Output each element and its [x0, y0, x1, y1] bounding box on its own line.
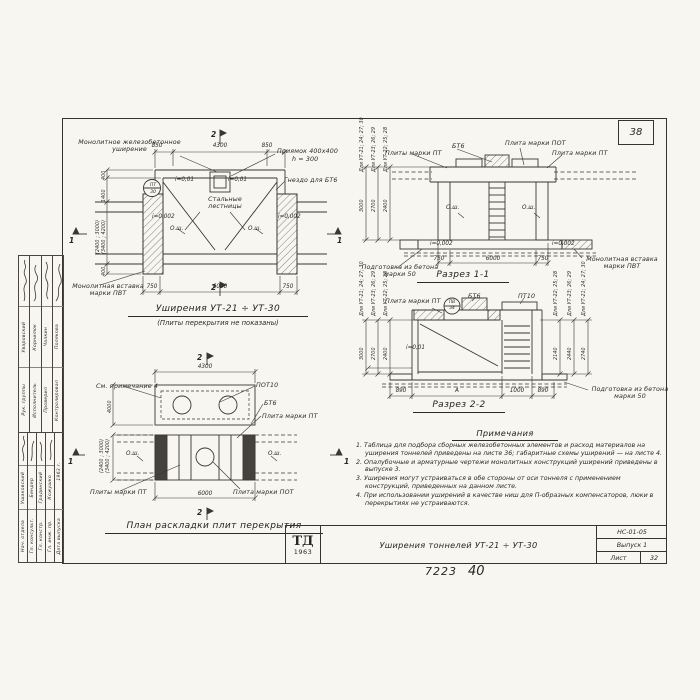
stamp-role: Гл. консульт.: [30, 518, 35, 553]
label-concrete-prep: Подготовка из бетона марки 50: [588, 386, 672, 401]
signature: [28, 433, 36, 466]
signature-scribble: [28, 435, 36, 463]
dim-value: 4300: [190, 364, 220, 371]
signature: [19, 256, 29, 307]
label-pt10: ПТ10: [518, 293, 535, 300]
dim-value: 6000: [190, 491, 220, 498]
signature-scribble: [37, 435, 45, 463]
slope-label: i=0,002: [152, 214, 175, 221]
variant-label-rotated: Для УТ-21; 24; 27; 30: [360, 117, 366, 172]
dim-value-rotated: 2440: [568, 347, 574, 360]
section-mark-2: 2: [197, 508, 202, 517]
variant-label-rotated: Для УТ-23; 26; 29: [372, 271, 378, 316]
signature: [53, 256, 63, 307]
dim-value-rotated: 3000: [360, 347, 366, 360]
slope-label: i=0,01: [406, 345, 425, 352]
axis-label: О.ш.: [268, 451, 281, 458]
doc-sheet-row: Лист 32: [597, 552, 667, 564]
variant-label-rotated: Для УТ-22; 25; 28: [384, 271, 390, 316]
stamp-name: Бендер: [30, 478, 35, 497]
dim-value: 850: [258, 143, 276, 150]
dim-value: А: [449, 388, 465, 395]
variant-label-rotated: Для УТ-21; 24; 27; 30: [582, 261, 588, 316]
stamp-role: Нач. отдела: [21, 520, 26, 552]
label-monolithic-insert: Монолитная вставка марки ПВТ: [576, 256, 668, 271]
stamp-strip: Уваровский Рук. группы Корнилюк Исполнит…: [18, 255, 64, 563]
stamp-column: Уваровский Рук. группы: [19, 256, 30, 432]
axis-label: О.ш.: [170, 226, 183, 233]
stamp-bottom-group: Ушаковский Нач. отдела Бендер Гл. консул…: [19, 433, 63, 562]
stamp-name-cell: 1963 г.: [55, 433, 63, 510]
slope-label: i=0,002: [278, 214, 301, 221]
slope-label: i=0,01: [175, 177, 194, 184]
variant-label-rotated: Для УТ-21; 24; 27; 30: [360, 261, 366, 316]
label-plate-pt: Плита марки ПТ: [552, 150, 608, 157]
dim-value-rotated: 400: [102, 171, 108, 180]
plan-widening-subtitle: (Плиты перекрытия не показаны): [118, 319, 318, 327]
stamp-role: Рук. группы: [22, 384, 27, 416]
stamp-name-cell: Уваровский: [19, 307, 29, 368]
signature-scribble: [19, 259, 29, 303]
signature: [37, 433, 45, 466]
plan-plates-linework: [65, 350, 350, 525]
dim-value-rotated: 1400: [102, 189, 108, 202]
section-mark-1: 1: [69, 236, 74, 245]
section-mark-1: 1: [344, 457, 349, 466]
footer-page-number: 40: [468, 564, 485, 579]
axis-label: О.ш.: [248, 226, 261, 233]
dim-value: 750: [534, 256, 552, 263]
stamp-role: Проверил: [44, 387, 49, 413]
stamp-name-cell: Ушаковский: [19, 466, 27, 510]
label-plates-pt: Плиты марки ПТ: [90, 489, 147, 496]
signature: [30, 256, 40, 307]
stamp-role-cell: Проверил: [42, 368, 52, 432]
stamp-role-cell: Нач. отдела: [19, 510, 27, 562]
signature-scribble: [19, 435, 27, 463]
dim-value-rotated: (2400 ; 3000) (3400 ; 4200): [100, 439, 111, 473]
label-plates-pt: Плиты марки ПТ: [385, 150, 442, 157]
dim-value: 890: [393, 388, 409, 395]
signature-scribble: [46, 435, 54, 463]
note-item: 3. Уширения могут устраиваться в обе сто…: [356, 475, 662, 491]
section-mark-2: 2: [211, 130, 216, 139]
dim-value: 890: [535, 388, 551, 395]
dim-value-rotated: 2700: [372, 199, 378, 212]
label-pot10: ПОТ10: [256, 382, 278, 389]
dim-value: 750: [279, 284, 297, 291]
doc-code: НС-01-05: [597, 526, 667, 539]
variant-label-rotated: Для УТ-23; 26; 29: [568, 271, 574, 316]
stamp-role-cell: Контролировал: [53, 368, 63, 432]
axis-label: О.ш.: [446, 205, 459, 212]
label-plate-pt: Плита марки ПТ: [262, 413, 318, 420]
section-mark-2: 2: [211, 283, 216, 292]
stamp-role: Исполнитель: [33, 383, 38, 418]
signature: [46, 433, 54, 466]
doc-issue: Выпуск 1: [597, 539, 667, 552]
stamp-name-cell: Бендер: [28, 466, 36, 510]
stamp-column: Корнилюк Исполнитель: [30, 256, 41, 432]
dim-value-rotated: 2740: [582, 347, 588, 360]
dim-value: 850: [148, 143, 166, 150]
sheet-label: Лист: [597, 552, 641, 564]
stamp-role-cell: Исполнитель: [30, 368, 40, 432]
dim-variant-a: (2400 ; 3000): [100, 439, 106, 473]
label-socket-bt6: Гнездо для БТ6: [284, 177, 338, 184]
axis-label: О.ш.: [522, 205, 535, 212]
stamp-column: Градинский Гл. констр.: [37, 433, 46, 562]
note-item: 4. При использовании уширений в качестве…: [356, 492, 662, 508]
stamp-column: Ушаковский Нач. отдела: [19, 433, 28, 562]
dim-value: 6000: [478, 256, 508, 263]
stamp-role-cell: Гл. консульт.: [28, 510, 36, 562]
stamp-name: Ушаковский: [21, 472, 26, 504]
label-plate-pot: Плита марки ПОТ: [505, 140, 566, 147]
label-plate-pot: Плита марки ПОТ: [233, 489, 294, 496]
variant-label-rotated: Для УТ-22; 25; 28: [384, 127, 390, 172]
stamp-role: Гл. констр.: [39, 521, 44, 550]
stamp-role-cell: Гл. инж. пр.: [46, 510, 54, 562]
variant-label-rotated: Для УТ-23; 26; 29: [372, 127, 378, 172]
stamp-name-cell: Градинский: [37, 466, 45, 510]
section-mark-2: 2: [197, 353, 202, 362]
section-1-1-title: Разрез 1-1: [417, 270, 509, 283]
dim-value: 6000: [205, 284, 235, 291]
footer-number: 7223: [425, 565, 457, 578]
dim-value-rotated: 3000: [360, 199, 366, 212]
callout-mark-bottom: 34: [445, 307, 459, 312]
dim-value-rotated: 2400: [384, 347, 390, 360]
dim-value-rotated: 4000: [108, 400, 114, 413]
stamp-name: Кожушко: [48, 475, 53, 500]
title-block: ТД 1963 Уширения тоннелей УТ-21 ÷ УТ-30 …: [285, 525, 667, 564]
stamp-column: Бендер Гл. консульт.: [28, 433, 37, 562]
stamp-name-cell: Корнилюк: [30, 307, 40, 368]
dim-value: 1000: [507, 388, 527, 395]
stamp-name: Уваровский: [22, 322, 27, 353]
stamp-name-cell: Чалкин: [42, 307, 52, 368]
label-see-note: См. примечание 4: [96, 383, 158, 390]
dim-variant-b: (3400 ; 4200): [102, 220, 108, 254]
logo-td: ТД: [292, 535, 313, 548]
label-pit-line1: Приямок 400х400: [277, 148, 338, 155]
label-plate-pt: Плита марки ПТ: [385, 298, 441, 305]
stamp-role: Гл. инж. пр.: [48, 520, 53, 552]
note-item: 1. Таблица для подбора сборных железобет…: [356, 442, 662, 458]
title-block-right: НС-01-05 Выпуск 1 Лист 32: [596, 526, 667, 564]
variant-label-rotated: Для УТ-22; 25; 28: [554, 271, 560, 316]
axis-label: О.ш.: [126, 451, 139, 458]
note-item: 2. Опалубочные и арматурные чертежи моно…: [356, 459, 662, 475]
stamp-role-cell: Рук. группы: [19, 368, 29, 432]
slope-label: i=0,002: [430, 241, 453, 248]
callout-mark-bottom: 30: [145, 190, 161, 195]
stamp-name-cell: Кожушко: [46, 466, 54, 510]
stamp-role-cell: Гл. констр.: [37, 510, 45, 562]
label-monolithic-widening: Монолитное железобетонное уширение: [72, 139, 187, 154]
stamp-role: Контролировал: [55, 380, 60, 421]
slope-label: i=0,01: [228, 177, 247, 184]
section-mark-1: 1: [337, 236, 342, 245]
section-2-2-title: Разрез 2-2: [413, 400, 505, 413]
notes-list: 1. Таблица для подбора сборных железобет…: [356, 442, 662, 507]
notes-heading: Примечания: [452, 428, 558, 441]
section-mark-1: 1: [68, 457, 73, 466]
dim-value-rotated: (2400 ; 3000) (3400 ; 4200): [96, 220, 107, 254]
dim-value: 750: [430, 256, 448, 263]
stamp-role: Дата выпуска: [57, 518, 62, 555]
dim-value: 4300: [205, 143, 235, 150]
callout-mark-top: ПТ: [145, 183, 161, 188]
signature: [42, 256, 52, 307]
stamp-column: Чалкин Проверил: [42, 256, 53, 432]
stamp-role-cell: Дата выпуска: [55, 510, 63, 562]
label-bt6: БТ6: [468, 293, 481, 300]
dim-value-rotated: 2400: [384, 199, 390, 212]
stamp-top-group: Уваровский Рук. группы Корнилюк Исполнит…: [19, 256, 63, 433]
dim-value-rotated: 2700: [372, 347, 378, 360]
dim-variant-a: (2400 ; 3000): [96, 220, 102, 254]
logo-year: 1963: [294, 548, 313, 556]
dim-value-rotated: 2140: [554, 347, 560, 360]
stamp-name: Полякова: [55, 324, 60, 349]
stamp-name: Корнилюк: [33, 324, 38, 351]
label-bt6: БТ6: [264, 400, 277, 407]
sheet-number: 32: [641, 552, 667, 564]
plan-widening-title: Уширения УТ-21 ÷ УТ-30: [128, 304, 308, 317]
label-bt6: БТ6: [452, 143, 465, 150]
stamp-name-cell: Полякова: [53, 307, 63, 368]
signature-scribble: [30, 259, 40, 303]
stamp-column: 1963 г. Дата выпуска: [55, 433, 63, 562]
signature: [19, 433, 27, 466]
label-pit-line2: h = 300: [292, 156, 318, 163]
stamp-column: Кожушко Гл. инж. пр.: [46, 433, 55, 562]
stamp-name: Градинский: [39, 472, 44, 503]
title-block-title: Уширения тоннелей УТ-21 ÷ УТ-30: [321, 526, 596, 564]
label-steel-stairs: Стальные лестницы: [196, 196, 254, 211]
label-monolithic-insert: Монолитная вставка марки ПВТ: [62, 283, 154, 298]
drawing-sheet: 38 Уваровский Рук. группы Корнилюк Испол…: [0, 0, 700, 700]
dim-value-rotated: 400: [102, 267, 108, 276]
stamp-name: Чалкин: [44, 327, 49, 346]
dim-value: 750: [143, 284, 161, 291]
slope-label: i=0,002: [552, 241, 575, 248]
dim-variant-b: (3400 ; 4200): [106, 439, 112, 473]
signature-scribble: [42, 259, 52, 303]
title-block-logo: ТД 1963: [286, 526, 321, 564]
stamp-name: 1963 г.: [57, 462, 62, 481]
